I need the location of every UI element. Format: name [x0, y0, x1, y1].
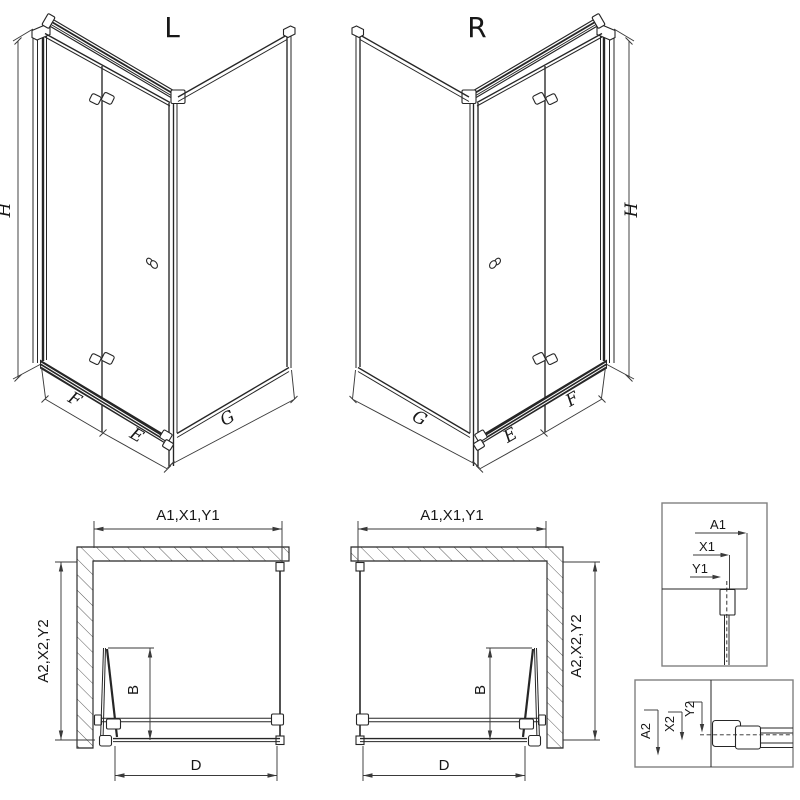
detail-label-x1: X1: [699, 539, 715, 554]
wall-profile-detail: [720, 590, 735, 616]
dim-label-d-planleft: D: [191, 757, 202, 774]
detail-view-top: A1 X1 Y1: [662, 503, 767, 666]
version-label-left: L: [164, 11, 180, 44]
dim-label-depth-planright: A2,X2,Y2: [568, 614, 585, 677]
diagram-canvas: L H F E G R H F E G A1,X1,Y1 A2,X2,Y2 B …: [0, 0, 800, 800]
dim-label-b-planleft: B: [125, 685, 142, 695]
iso-view-left: L H F E G: [0, 11, 298, 473]
detail-label-x2: X2: [662, 716, 677, 732]
detail-label-y2: Y2: [682, 701, 697, 717]
dim-label-width-planright: A1,X1,Y1: [420, 507, 483, 524]
detail-view-bottom: A2 X2 Y2: [635, 680, 793, 767]
dim-label-h-left: H: [0, 201, 15, 218]
version-label-right: R: [467, 11, 486, 44]
plan-view-left: A1,X1,Y1 A2,X2,Y2 B D: [35, 507, 289, 781]
detail-label-y1: Y1: [692, 561, 708, 576]
dim-label-g-right: G: [409, 407, 430, 431]
dim-label-b-planright: B: [472, 685, 489, 695]
dim-label-width-planleft: A1,X1,Y1: [156, 507, 219, 524]
dim-label-d-planright: D: [439, 757, 450, 774]
dim-label-depth-planleft: A2,X2,Y2: [35, 619, 52, 682]
dim-label-h-right: H: [622, 201, 642, 218]
plan-view-right: A1,X1,Y1 A2,X2,Y2 B D: [351, 507, 600, 781]
technical-drawing-page: L H F E G R H F E G A1,X1,Y1 A2,X2,Y2 B …: [0, 0, 800, 800]
detail-label-a2: A2: [638, 723, 653, 739]
detail-label-a1: A1: [710, 517, 726, 532]
iso-view-right: R H F E G: [350, 11, 643, 473]
dim-label-g-left: G: [217, 407, 238, 431]
